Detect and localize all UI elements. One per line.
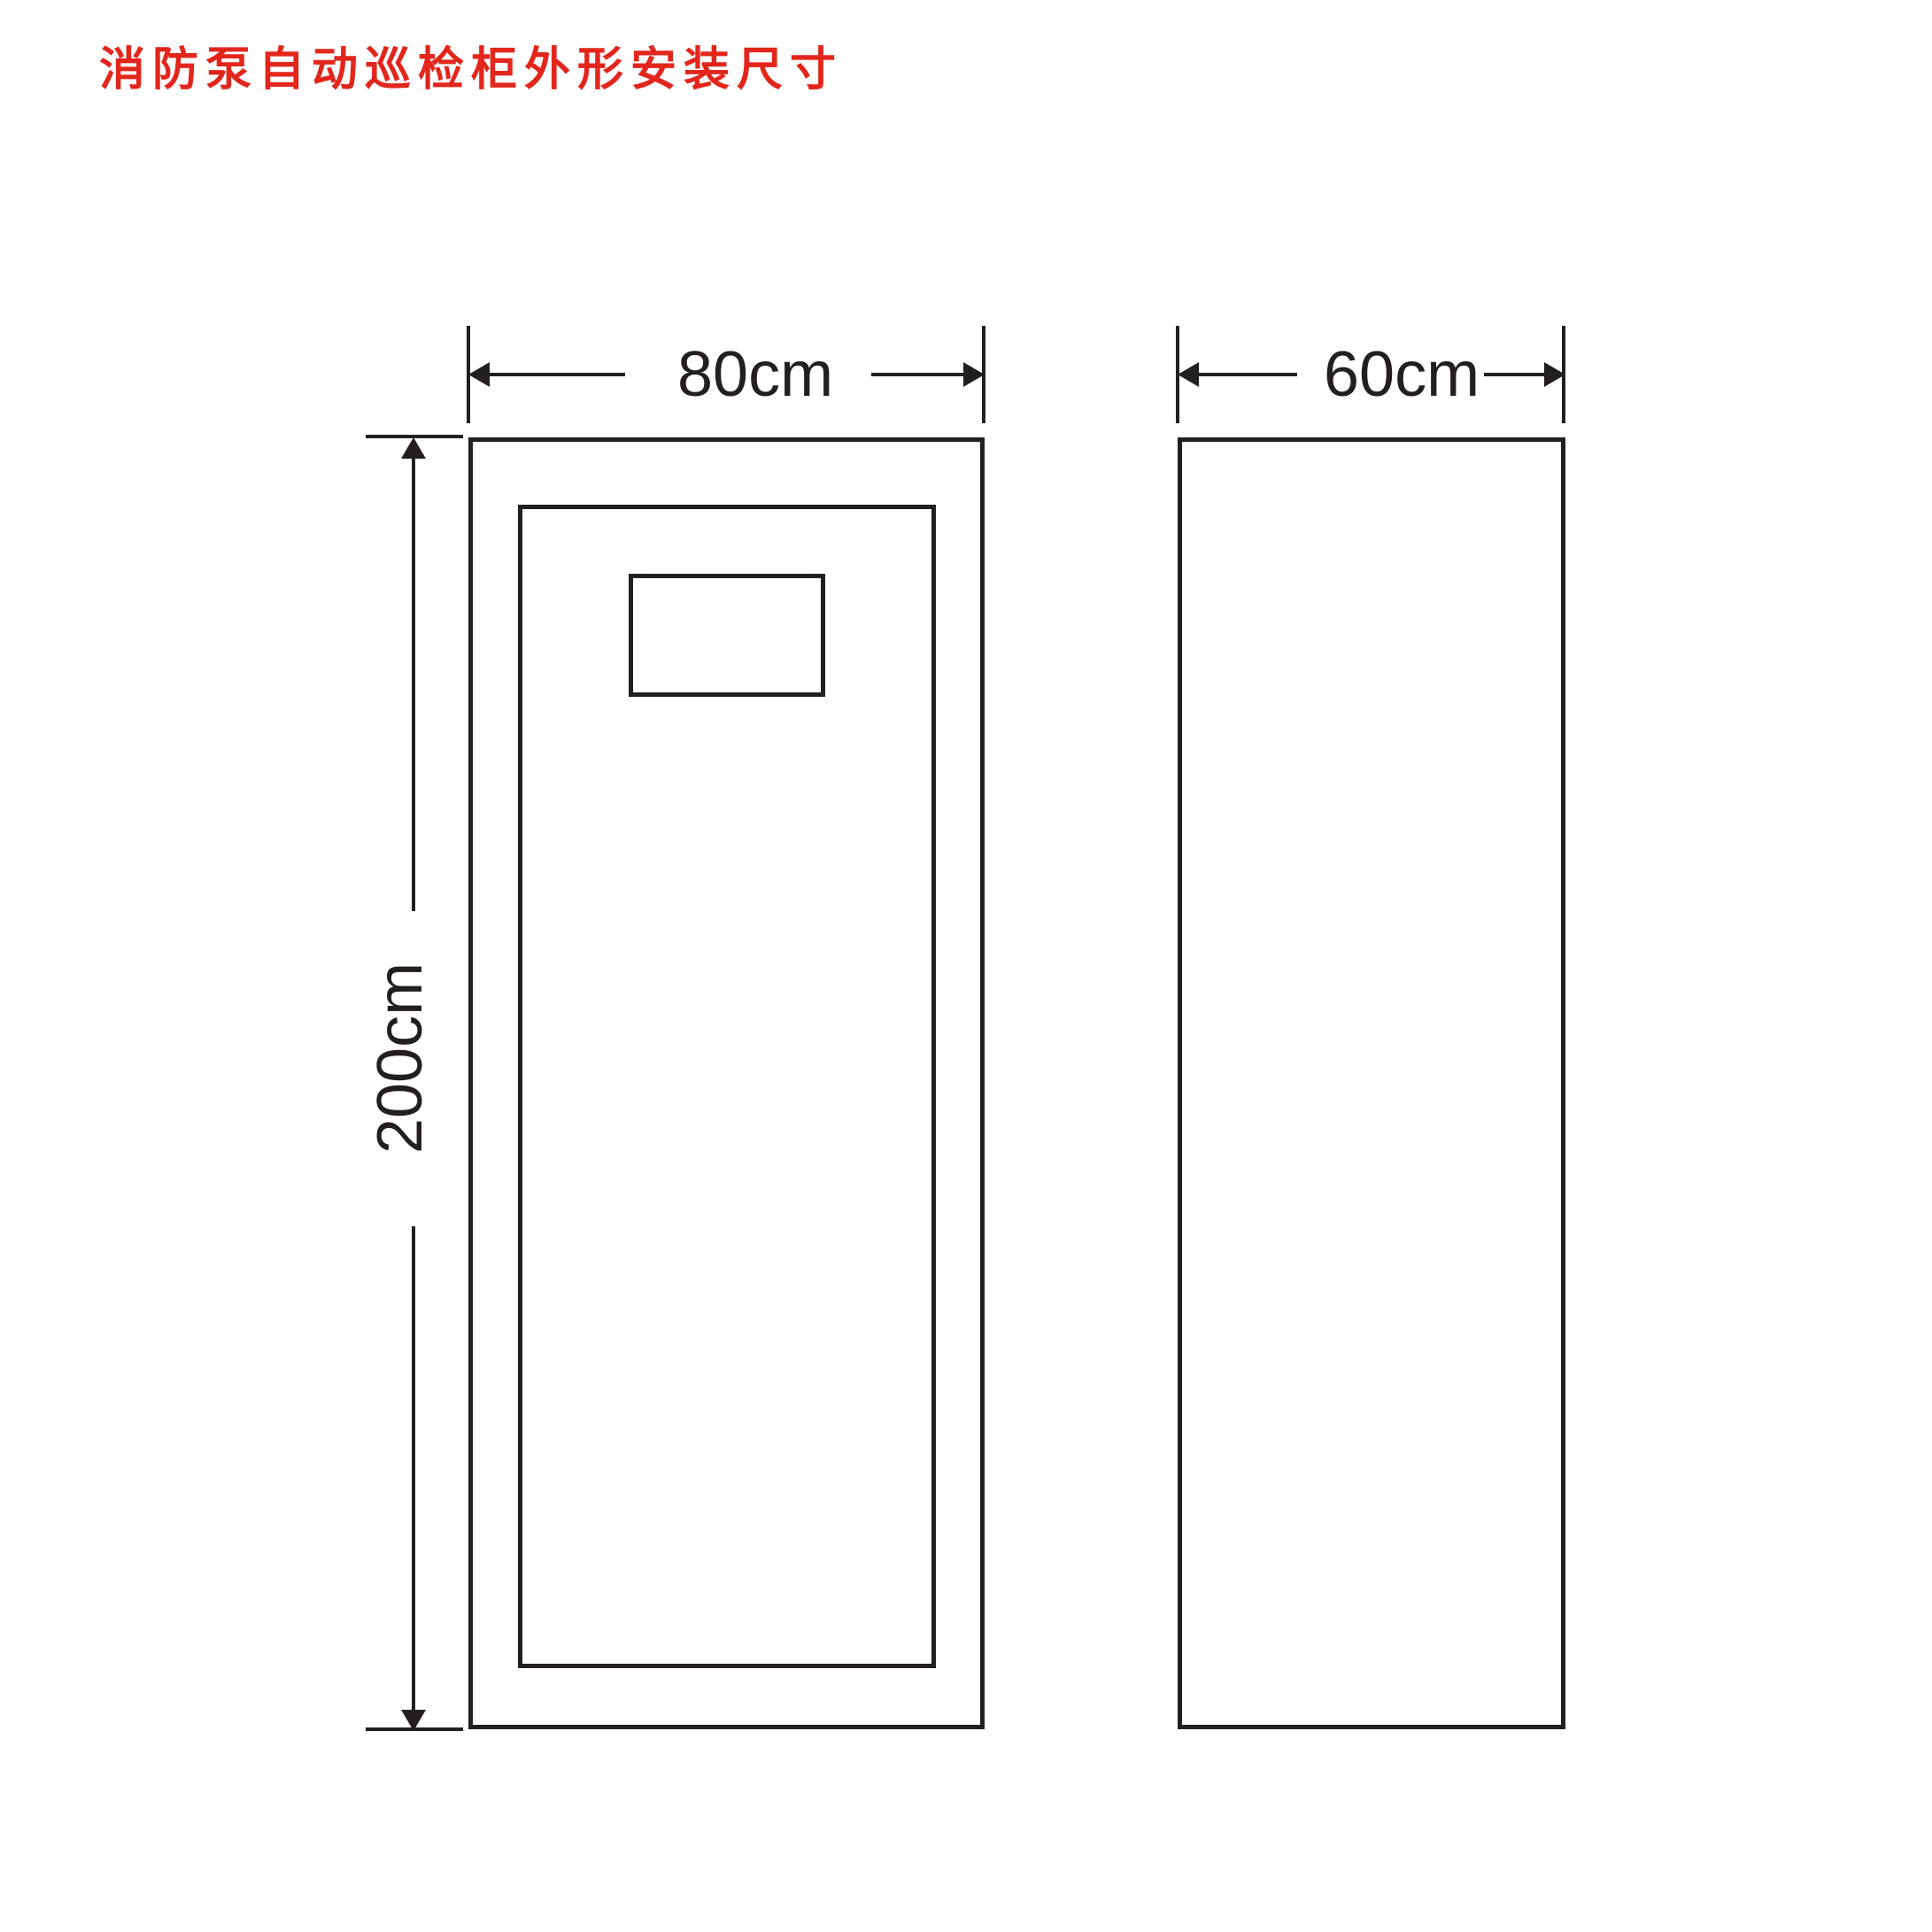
dimension-line [412,1226,415,1713]
cabinet-side-outline [1178,437,1565,1729]
dimension-label-front-width: 80cm [677,340,828,409]
dimension-line [412,458,415,911]
installation-dimensions-drawing: 消防泵自动巡检柜外形安装尺寸 80cm 60cm 200cm [0,0,1932,1932]
dimension-line [1196,373,1297,376]
dimension-label-side-width: 60cm [1324,340,1479,409]
arrowhead-down-icon [401,1710,426,1731]
arrowhead-right-icon [1544,362,1565,387]
dimension-label-cabinet-height: 200cm [366,962,435,1154]
arrowhead-right-icon [963,362,985,387]
dimension-line [1484,373,1548,376]
dimension-line [487,373,625,376]
dimension-line [871,373,967,376]
display-window-outline [629,574,825,697]
page-title: 消防泵自动巡检柜外形安装尺寸 [99,44,843,97]
arrowhead-up-icon [401,437,426,459]
